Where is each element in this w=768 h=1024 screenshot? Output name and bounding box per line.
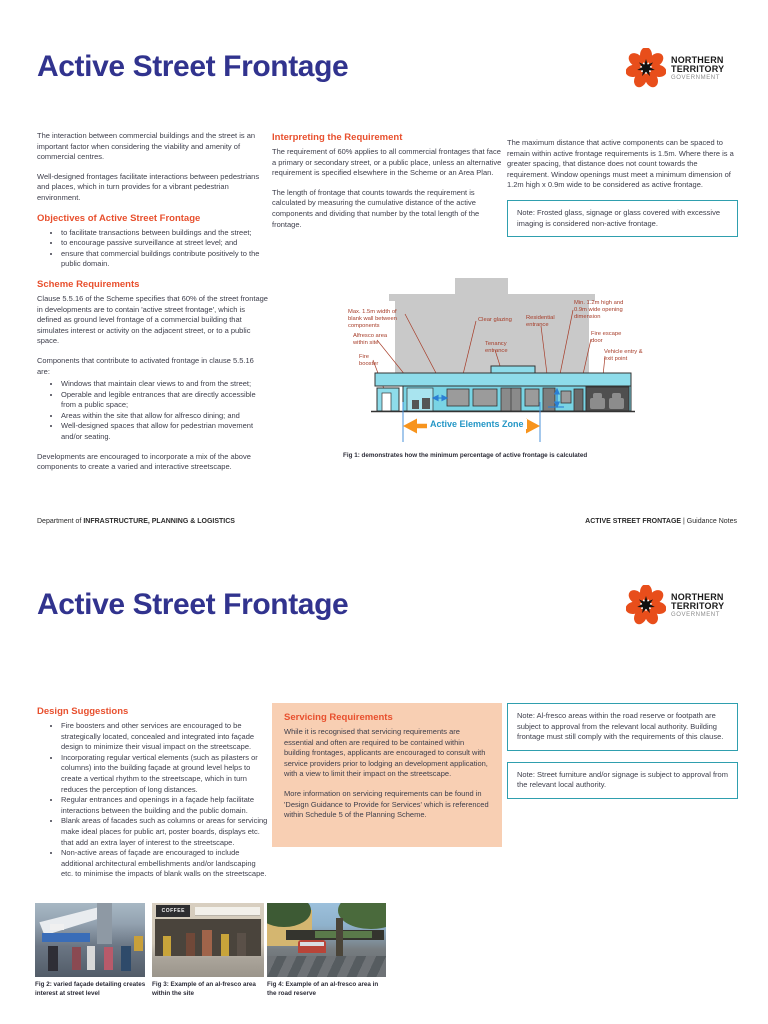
photo-person [186, 933, 195, 957]
frosted-glass-note-box: Note: Frosted glass, signage or glass co… [507, 200, 738, 237]
page2-title: Active Street Frontage [37, 588, 348, 622]
intro-paragraph-1: The interaction between commercial build… [37, 131, 268, 163]
photo-pylon [97, 903, 112, 944]
footer-doc-subtitle: | Guidance Notes [683, 518, 737, 525]
alfresco-note-box: Note: Al-fresco areas within the road re… [507, 703, 738, 751]
nt-government-logo-page2: NORTHERN TERRITORY GOVERNMENT [626, 585, 724, 627]
photo-bus-windows [300, 942, 324, 946]
label-vehicle-entry-exit: Vehicle entry & exit point [604, 349, 646, 363]
interpreting-heading: Interpreting the Requirement [272, 132, 503, 144]
components-item: Areas within the site that allow for alf… [61, 411, 268, 422]
photo-shaded-ground [267, 956, 386, 977]
scheme-requirements-heading: Scheme Requirements [37, 279, 268, 291]
fig3-coffee-sign: COFFEE [156, 905, 190, 917]
page2-column-1: Design Suggestions Fire boosters and oth… [37, 705, 268, 889]
components-item: Windows that maintain clear views to and… [61, 379, 268, 390]
figure1-diagram-graphic [343, 276, 743, 456]
building-silhouette [389, 278, 595, 374]
objectives-item: to encourage passive surveillance at str… [61, 238, 268, 249]
sturt-desert-rose-icon [626, 585, 666, 627]
sturt-desert-rose-icon [626, 48, 666, 90]
intro-paragraph-2: Well-designed frontages facilitate inter… [37, 172, 268, 204]
photo-atm-sign [50, 924, 63, 931]
objectives-heading: Objectives of Active Street Frontage [37, 213, 268, 225]
fig3-caption: Fig 3: Example of an al-fresco area with… [152, 981, 264, 998]
figure1-diagram: Max. 1.5m width of blank wall between co… [343, 276, 743, 456]
components-list: Windows that maintain clear views to and… [37, 379, 268, 443]
page1-column-1: The interaction between commercial build… [37, 131, 268, 482]
photo-chair [163, 936, 171, 955]
page1-footer-right: ACTIVE STREET FRONTAGE | Guidance Notes [585, 518, 737, 525]
objectives-list: to facilitate transactions between build… [37, 228, 268, 270]
fig2-caption: Fig 2: varied façade detailing creates i… [35, 981, 147, 998]
label-fire-escape-door: Fire escape door [591, 331, 631, 345]
photo-green-sign [315, 931, 372, 938]
photo-person [87, 946, 96, 970]
photo-person [104, 947, 113, 969]
street-furniture-note-text: Note: Street furniture and/or signage is… [517, 770, 728, 790]
logo-line3: GOVERNMENT [671, 611, 724, 620]
label-max-blank-wall: Max. 1.5m width of blank wall between co… [348, 309, 410, 330]
photo-banner [134, 936, 143, 951]
frosted-glass-note-text: Note: Frosted glass, signage or glass co… [517, 208, 720, 228]
photo-shop-sign [42, 933, 90, 943]
design-suggestions-list: Fire boosters and other services are enc… [37, 721, 268, 880]
logo-line3: GOVERNMENT [671, 74, 724, 83]
street-furniture-note-box: Note: Street furniture and/or signage is… [507, 762, 738, 799]
servicing-requirements-box: Servicing Requirements While it is recog… [272, 703, 502, 847]
label-tenancy-entrance: Tenancy entrance [485, 341, 517, 355]
scheme-paragraph-2: Components that contribute to activated … [37, 356, 268, 377]
servicing-paragraph-1: While it is recognised that servicing re… [284, 727, 490, 780]
servicing-paragraph-2: More information on servicing requiremen… [284, 789, 490, 821]
alfresco-note-text: Note: Al-fresco areas within the road re… [517, 711, 723, 741]
nt-government-logo: NORTHERN TERRITORY GOVERNMENT [626, 48, 724, 90]
scheme-paragraph-1: Clause 5.5.16 of the Scheme specifies th… [37, 294, 268, 347]
logo-line2: TERRITORY [671, 65, 724, 74]
fig4-caption: Fig 4: Example of an al-fresco area in t… [267, 981, 386, 998]
logo-line2: TERRITORY [671, 602, 724, 611]
photo-person [72, 947, 81, 969]
objectives-item: ensure that commercial buildings contrib… [61, 249, 268, 270]
interpreting-paragraph-1: The requirement of 60% applies to all co… [272, 147, 503, 179]
footer-doc-title: ACTIVE STREET FRONTAGE [585, 518, 681, 525]
scheme-paragraph-3: Developments are encouraged to incorpora… [37, 452, 268, 473]
storefront [371, 366, 635, 412]
photo-chair [221, 934, 229, 956]
label-clear-glazing: Clear glazing [478, 317, 524, 324]
label-alfresco-area: Alfresco area within site [353, 333, 393, 347]
interpreting-paragraph-2: The length of frontage that counts towar… [272, 188, 503, 230]
document-page-view: Active Street Frontage NORTHERN TERRITOR… [0, 0, 768, 1024]
design-suggestion-item: Regular entrances and openings in a faça… [61, 795, 268, 816]
photo-banner-sign [195, 907, 260, 917]
logo-wordmark: NORTHERN TERRITORY GOVERNMENT [671, 56, 724, 83]
design-suggestion-item: Non-active areas of façade are encourage… [61, 848, 268, 880]
photo-person [202, 930, 212, 957]
page1-column-2: Interpreting the Requirement The require… [272, 131, 503, 239]
page2-column-3: Note: Al-fresco areas within the road re… [507, 703, 738, 799]
label-residential-entrance: Residential entrance [526, 315, 564, 329]
label-min-opening-dimension: Min. 1.2m high and 0.9m wide opening dim… [574, 300, 626, 321]
fig4-photo [267, 903, 386, 977]
fig3-photo: COFFEE [152, 903, 264, 977]
objectives-item: to facilitate transactions between build… [61, 228, 268, 239]
design-suggestion-item: Fire boosters and other services are enc… [61, 721, 268, 753]
page1-title: Active Street Frontage [37, 50, 348, 84]
design-suggestion-item: Incorporating regular vertical elements … [61, 753, 268, 795]
photo-person [237, 933, 246, 957]
photo-person [48, 946, 58, 971]
servicing-heading: Servicing Requirements [284, 712, 490, 724]
design-suggestion-item: Blank areas of facades such as columns o… [61, 816, 268, 848]
maximum-distance-paragraph: The maximum distance that active compone… [507, 138, 738, 191]
logo-wordmark: NORTHERN TERRITORY GOVERNMENT [671, 593, 724, 620]
figure1-caption: Fig 1: demonstrates how the minimum perc… [343, 452, 663, 461]
footer-department-prefix: Department of [37, 518, 81, 525]
components-item: Well-designed spaces that allow for pede… [61, 421, 268, 442]
design-suggestions-heading: Design Suggestions [37, 706, 268, 718]
label-fire-booster: Fire booster [359, 354, 385, 368]
photo-person [121, 946, 131, 971]
active-elements-zone-label: Active Elements Zone [427, 419, 527, 429]
page1-column-3: The maximum distance that active compone… [507, 138, 738, 237]
page1-footer-left: Department of INFRASTRUCTURE, PLANNING &… [37, 518, 235, 525]
components-item: Operable and legible entrances that are … [61, 390, 268, 411]
fig2-photo [35, 903, 145, 977]
footer-department-name: INFRASTRUCTURE, PLANNING & LOGISTICS [83, 518, 235, 525]
